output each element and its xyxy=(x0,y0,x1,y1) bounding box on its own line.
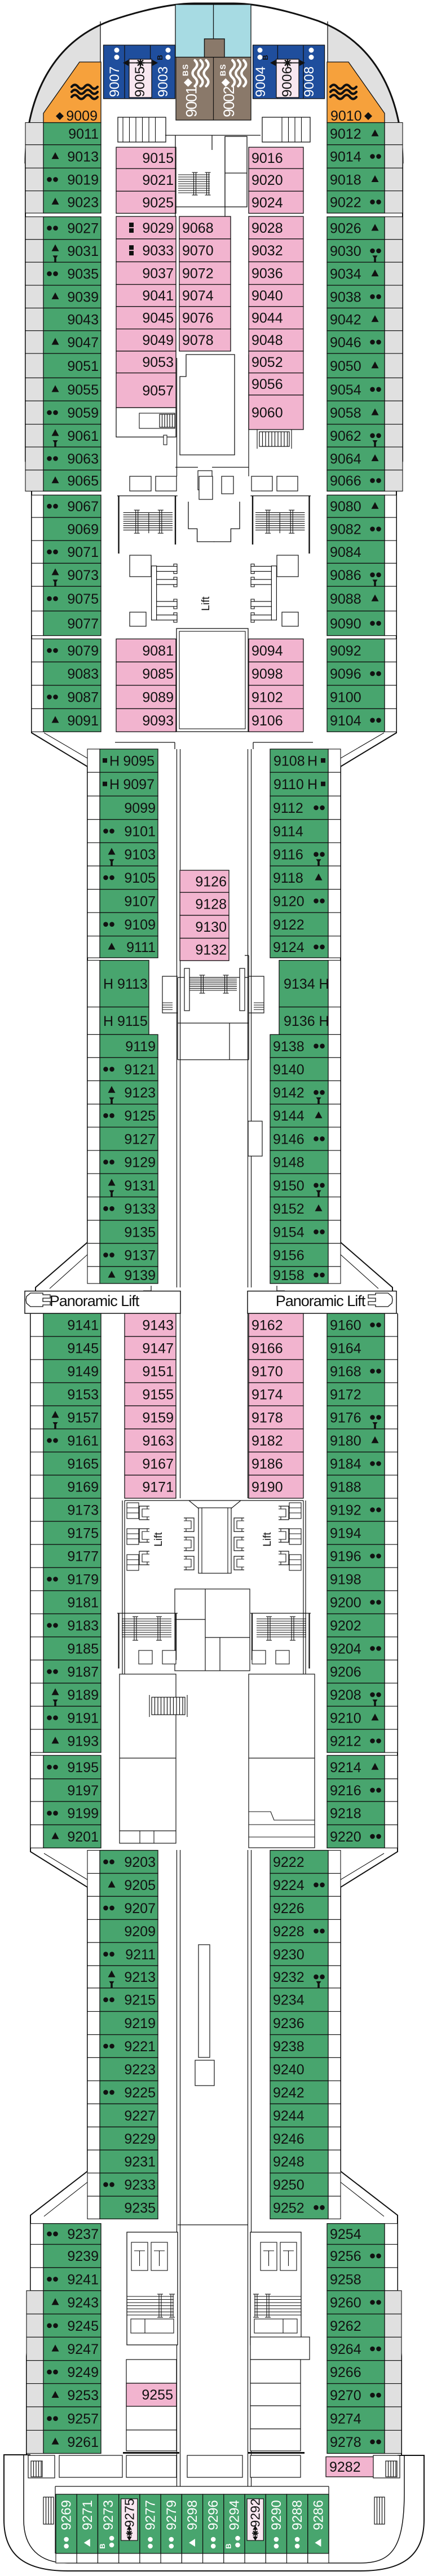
svg-text:9206: 9206 xyxy=(330,1665,361,1680)
svg-text:9152: 9152 xyxy=(273,1201,305,1217)
svg-text:9236: 9236 xyxy=(273,2016,305,2031)
svg-text:9248: 9248 xyxy=(273,2154,305,2170)
svg-text:9261: 9261 xyxy=(67,2435,99,2450)
svg-text:9148: 9148 xyxy=(273,1155,305,1171)
svg-text:9165: 9165 xyxy=(67,1457,99,1472)
svg-text:9114: 9114 xyxy=(273,824,303,839)
svg-text:9089: 9089 xyxy=(142,690,174,706)
svg-text:9194: 9194 xyxy=(330,1526,361,1542)
svg-text:9169: 9169 xyxy=(67,1480,99,1495)
svg-text:9162: 9162 xyxy=(251,1318,283,1334)
svg-text:9026: 9026 xyxy=(330,221,361,237)
svg-text:B: B xyxy=(224,2543,233,2548)
svg-text:9045: 9045 xyxy=(142,311,174,326)
svg-text:9030: 9030 xyxy=(330,244,361,259)
svg-text:9024: 9024 xyxy=(251,195,283,211)
svg-text:9192: 9192 xyxy=(330,1503,361,1519)
svg-text:9032: 9032 xyxy=(251,243,283,259)
svg-text:9048: 9048 xyxy=(251,333,283,348)
svg-text:9264: 9264 xyxy=(330,2342,361,2357)
svg-text:9250: 9250 xyxy=(273,2177,305,2193)
svg-text:9108: 9108 xyxy=(273,754,305,769)
svg-text:9271: 9271 xyxy=(80,2500,95,2530)
svg-text:9035: 9035 xyxy=(67,267,99,282)
svg-text:9207: 9207 xyxy=(124,1901,156,1916)
svg-text:9104: 9104 xyxy=(330,713,361,729)
svg-text:9185: 9185 xyxy=(67,1641,99,1657)
svg-text:9231: 9231 xyxy=(124,2154,156,2170)
svg-text:9011: 9011 xyxy=(68,126,99,142)
svg-text:9099: 9099 xyxy=(124,800,156,816)
svg-text:9151: 9151 xyxy=(142,1364,174,1380)
svg-text:9186: 9186 xyxy=(251,1457,283,1472)
svg-text:B: B xyxy=(261,55,270,60)
svg-text:B: B xyxy=(98,2543,107,2548)
svg-text:9013: 9013 xyxy=(67,149,99,165)
svg-text:9190: 9190 xyxy=(251,1480,283,1495)
svg-text:9105: 9105 xyxy=(124,870,156,886)
svg-text:9235: 9235 xyxy=(124,2200,156,2216)
svg-text:9008: 9008 xyxy=(302,67,317,98)
svg-text:9070: 9070 xyxy=(182,243,214,259)
svg-text:9086: 9086 xyxy=(330,568,361,583)
svg-text:9177: 9177 xyxy=(67,1549,99,1565)
svg-text:9121: 9121 xyxy=(124,1062,156,1078)
svg-text:9123: 9123 xyxy=(124,1085,156,1101)
svg-text:9009: 9009 xyxy=(66,108,98,124)
svg-text:9279: 9279 xyxy=(164,2500,179,2530)
svg-text:9187: 9187 xyxy=(67,1665,99,1680)
svg-text:9091: 9091 xyxy=(67,713,99,729)
svg-text:9132: 9132 xyxy=(195,942,227,958)
svg-text:9023: 9023 xyxy=(67,194,99,210)
svg-text:9056: 9056 xyxy=(251,377,283,392)
svg-text:9055: 9055 xyxy=(67,382,99,398)
svg-text:9134 H: 9134 H xyxy=(284,976,329,992)
svg-text:9153: 9153 xyxy=(67,1387,99,1403)
svg-text:9022: 9022 xyxy=(330,194,361,210)
svg-text:H: H xyxy=(307,754,317,769)
svg-text:9212: 9212 xyxy=(330,1734,361,1750)
svg-text:9136 H: 9136 H xyxy=(284,1013,329,1029)
svg-text:B: B xyxy=(156,55,164,60)
svg-text:9057: 9057 xyxy=(142,383,174,399)
svg-text:BS: BS xyxy=(181,64,190,76)
svg-text:9127: 9127 xyxy=(124,1131,156,1147)
svg-text:9128: 9128 xyxy=(195,897,227,913)
svg-text:9164: 9164 xyxy=(330,1341,361,1357)
svg-text:9262: 9262 xyxy=(330,2318,361,2334)
svg-text:9225: 9225 xyxy=(124,2085,156,2101)
svg-text:9130: 9130 xyxy=(195,919,227,935)
svg-text:9061: 9061 xyxy=(67,428,99,444)
svg-text:9004: 9004 xyxy=(253,67,268,98)
svg-text:9036: 9036 xyxy=(251,266,283,282)
svg-text:9294: 9294 xyxy=(227,2500,242,2530)
svg-text:9002: 9002 xyxy=(220,86,237,117)
svg-text:9019: 9019 xyxy=(67,172,99,188)
svg-text:9224: 9224 xyxy=(273,1878,305,1893)
svg-text:9246: 9246 xyxy=(273,2131,305,2147)
svg-text:9049: 9049 xyxy=(142,333,174,348)
svg-text:9230: 9230 xyxy=(273,1947,305,1963)
svg-text:9240: 9240 xyxy=(273,2062,305,2078)
svg-text:9046: 9046 xyxy=(330,335,361,351)
svg-text:9150: 9150 xyxy=(273,1178,305,1194)
svg-text:9124: 9124 xyxy=(273,940,305,955)
svg-text:9290: 9290 xyxy=(269,2500,284,2530)
svg-text:9146: 9146 xyxy=(273,1131,305,1147)
svg-text:9149: 9149 xyxy=(67,1364,99,1380)
svg-text:9174: 9174 xyxy=(251,1387,283,1403)
svg-text:9195: 9195 xyxy=(67,1760,99,1776)
svg-text:9210: 9210 xyxy=(330,1711,361,1727)
svg-text:9101: 9101 xyxy=(124,824,156,839)
svg-text:9216: 9216 xyxy=(330,1783,361,1799)
svg-text:Lift: Lift xyxy=(153,1532,165,1547)
svg-text:9154: 9154 xyxy=(273,1224,305,1240)
svg-text:9085: 9085 xyxy=(142,666,174,682)
svg-text:9109: 9109 xyxy=(124,917,156,933)
svg-text:9119: 9119 xyxy=(125,1039,156,1055)
svg-text:H 9115: H 9115 xyxy=(103,1013,148,1029)
svg-text:9087: 9087 xyxy=(67,690,99,706)
svg-text:9068: 9068 xyxy=(182,220,214,236)
svg-text:9170: 9170 xyxy=(251,1364,283,1380)
svg-text:9098: 9098 xyxy=(251,666,283,682)
svg-text:9292: 9292 xyxy=(248,2498,263,2527)
svg-text:9118: 9118 xyxy=(273,870,303,886)
svg-text:9092: 9092 xyxy=(330,643,361,659)
svg-text:9106: 9106 xyxy=(251,713,283,729)
svg-text:9140: 9140 xyxy=(273,1062,305,1078)
svg-text:9005: 9005 xyxy=(133,67,148,98)
svg-text:9088: 9088 xyxy=(330,591,361,607)
svg-text:9173: 9173 xyxy=(67,1503,99,1519)
svg-text:9182: 9182 xyxy=(251,1433,283,1449)
svg-text:9234: 9234 xyxy=(273,1993,305,2008)
svg-text:9006: 9006 xyxy=(280,67,295,98)
svg-text:9003: 9003 xyxy=(156,67,171,98)
svg-text:9059: 9059 xyxy=(67,405,99,421)
svg-text:9122: 9122 xyxy=(273,917,305,933)
svg-text:9078: 9078 xyxy=(182,333,214,348)
svg-text:9238: 9238 xyxy=(273,2039,305,2055)
svg-text:9112: 9112 xyxy=(273,800,303,816)
svg-text:9219: 9219 xyxy=(124,2016,156,2031)
svg-text:9275: 9275 xyxy=(122,2498,136,2527)
svg-text:9096: 9096 xyxy=(330,666,361,682)
svg-text:9116: 9116 xyxy=(273,847,303,863)
svg-text:9079: 9079 xyxy=(67,643,99,659)
svg-text:9094: 9094 xyxy=(251,643,283,659)
svg-text:9077: 9077 xyxy=(67,616,99,632)
svg-text:9145: 9145 xyxy=(67,1341,99,1357)
svg-text:9050: 9050 xyxy=(330,358,361,374)
svg-text:9193: 9193 xyxy=(67,1734,99,1750)
svg-text:9029: 9029 xyxy=(142,220,174,236)
svg-text:9131: 9131 xyxy=(124,1178,156,1194)
svg-text:9076: 9076 xyxy=(182,311,214,326)
svg-text:9252: 9252 xyxy=(273,2200,305,2216)
svg-text:9125: 9125 xyxy=(124,1108,156,1124)
svg-text:9296: 9296 xyxy=(206,2500,221,2530)
svg-text:9010: 9010 xyxy=(330,108,362,124)
svg-text:9018: 9018 xyxy=(330,172,361,188)
svg-text:9223: 9223 xyxy=(124,2062,156,2078)
svg-text:9073: 9073 xyxy=(67,568,99,583)
svg-text:9071: 9071 xyxy=(67,545,99,560)
svg-text:9031: 9031 xyxy=(67,244,99,259)
svg-text:9016: 9016 xyxy=(251,151,283,166)
svg-text:9065: 9065 xyxy=(67,473,99,489)
svg-text:9161: 9161 xyxy=(67,1433,99,1449)
svg-text:9143: 9143 xyxy=(142,1318,174,1334)
svg-text:9288: 9288 xyxy=(290,2500,305,2530)
svg-text:9253: 9253 xyxy=(67,2388,99,2404)
svg-text:9218: 9218 xyxy=(330,1806,361,1822)
svg-text:9166: 9166 xyxy=(251,1341,283,1357)
svg-text:9254: 9254 xyxy=(330,2227,361,2242)
svg-text:H: H xyxy=(307,777,317,793)
svg-text:9282: 9282 xyxy=(329,2459,361,2475)
svg-text:9229: 9229 xyxy=(124,2131,156,2147)
svg-text:Panoramic Lift: Panoramic Lift xyxy=(276,1293,366,1309)
svg-text:9062: 9062 xyxy=(330,428,361,444)
svg-text:9228: 9228 xyxy=(273,1924,305,1940)
svg-text:9052: 9052 xyxy=(251,355,283,370)
svg-text:9054: 9054 xyxy=(330,382,361,398)
svg-text:9064: 9064 xyxy=(330,452,361,467)
svg-text:9220: 9220 xyxy=(330,1829,361,1845)
svg-text:BS: BS xyxy=(218,64,227,76)
svg-text:9179: 9179 xyxy=(67,1572,99,1588)
svg-text:9147: 9147 xyxy=(142,1341,174,1357)
svg-text:9053: 9053 xyxy=(142,355,174,370)
svg-text:9198: 9198 xyxy=(330,1572,361,1588)
svg-text:9256: 9256 xyxy=(330,2249,361,2264)
svg-text:9222: 9222 xyxy=(273,1854,305,1870)
svg-text:9159: 9159 xyxy=(142,1410,174,1426)
svg-text:Panoramic Lift: Panoramic Lift xyxy=(50,1293,140,1309)
svg-text:9233: 9233 xyxy=(124,2177,156,2193)
svg-text:9243: 9243 xyxy=(67,2295,99,2311)
svg-text:9188: 9188 xyxy=(330,1480,361,1495)
svg-text:9183: 9183 xyxy=(67,1618,99,1634)
svg-text:9204: 9204 xyxy=(330,1641,361,1657)
svg-text:9172: 9172 xyxy=(330,1387,361,1403)
svg-text:9226: 9226 xyxy=(273,1901,305,1916)
svg-text:9039: 9039 xyxy=(67,289,99,305)
svg-text:9214: 9214 xyxy=(330,1760,361,1776)
svg-text:9043: 9043 xyxy=(67,312,99,328)
svg-text:9201: 9201 xyxy=(67,1829,99,1845)
svg-text:9221: 9221 xyxy=(124,2039,156,2055)
svg-text:9058: 9058 xyxy=(330,405,361,421)
svg-text:9081: 9081 xyxy=(142,643,174,659)
svg-text:9270: 9270 xyxy=(330,2388,361,2404)
svg-text:9142: 9142 xyxy=(273,1085,305,1101)
svg-text:9227: 9227 xyxy=(124,2108,156,2124)
svg-text:9175: 9175 xyxy=(67,1526,99,1542)
svg-text:9102: 9102 xyxy=(251,690,283,706)
svg-text:9028: 9028 xyxy=(251,220,283,236)
svg-text:9184: 9184 xyxy=(330,1457,361,1472)
svg-text:9273: 9273 xyxy=(101,2500,116,2530)
svg-text:9298: 9298 xyxy=(185,2500,200,2530)
svg-text:9060: 9060 xyxy=(251,405,283,421)
svg-text:9180: 9180 xyxy=(330,1433,361,1449)
svg-text:9208: 9208 xyxy=(330,1688,361,1703)
svg-text:9244: 9244 xyxy=(273,2108,305,2124)
svg-text:9090: 9090 xyxy=(330,616,361,632)
svg-text:9203: 9203 xyxy=(124,1854,156,1870)
svg-text:9069: 9069 xyxy=(67,522,99,538)
svg-text:9189: 9189 xyxy=(67,1688,99,1703)
svg-text:9274: 9274 xyxy=(330,2411,361,2427)
svg-text:9266: 9266 xyxy=(330,2365,361,2380)
svg-text:9202: 9202 xyxy=(330,1618,361,1634)
svg-text:9205: 9205 xyxy=(124,1878,156,1893)
svg-text:H: H xyxy=(109,754,120,769)
svg-text:9025: 9025 xyxy=(142,195,174,211)
svg-text:9141: 9141 xyxy=(67,1318,99,1334)
svg-text:9041: 9041 xyxy=(142,288,174,304)
svg-text:9138: 9138 xyxy=(273,1039,305,1055)
svg-text:9286: 9286 xyxy=(311,2500,326,2530)
svg-text:9021: 9021 xyxy=(142,172,174,188)
svg-text:9200: 9200 xyxy=(330,1595,361,1611)
svg-text:9037: 9037 xyxy=(142,266,174,282)
svg-text:9171: 9171 xyxy=(142,1480,174,1495)
svg-text:9278: 9278 xyxy=(330,2435,361,2450)
svg-text:9242: 9242 xyxy=(273,2085,305,2101)
svg-text:9156: 9156 xyxy=(273,1247,305,1263)
svg-text:9269: 9269 xyxy=(59,2500,74,2530)
svg-text:9176: 9176 xyxy=(330,1410,361,1426)
svg-text:9144: 9144 xyxy=(273,1108,305,1124)
svg-text:9066: 9066 xyxy=(330,473,361,489)
svg-text:9033: 9033 xyxy=(142,243,174,259)
svg-text:9215: 9215 xyxy=(124,1993,156,2008)
svg-text:9135: 9135 xyxy=(124,1224,156,1240)
svg-text:9093: 9093 xyxy=(142,713,174,729)
svg-text:9167: 9167 xyxy=(142,1457,174,1472)
svg-text:9047: 9047 xyxy=(67,335,99,351)
svg-text:9277: 9277 xyxy=(143,2500,158,2530)
svg-text:9249: 9249 xyxy=(67,2365,99,2380)
svg-text:9247: 9247 xyxy=(67,2342,99,2357)
svg-text:9241: 9241 xyxy=(67,2272,99,2287)
svg-text:9245: 9245 xyxy=(67,2318,99,2334)
svg-text:9191: 9191 xyxy=(67,1711,99,1727)
svg-text:9211: 9211 xyxy=(125,1947,156,1963)
svg-text:9034: 9034 xyxy=(330,267,361,282)
svg-text:9103: 9103 xyxy=(124,847,156,863)
svg-text:9120: 9120 xyxy=(273,893,305,909)
svg-text:9074: 9074 xyxy=(182,288,214,304)
svg-text:9100: 9100 xyxy=(330,690,361,706)
svg-text:9129: 9129 xyxy=(124,1155,156,1171)
svg-text:9163: 9163 xyxy=(142,1433,174,1449)
svg-text:9097: 9097 xyxy=(123,777,155,793)
svg-text:9083: 9083 xyxy=(67,666,99,682)
svg-text:9258: 9258 xyxy=(330,2272,361,2287)
svg-text:9160: 9160 xyxy=(330,1318,361,1334)
svg-text:9199: 9199 xyxy=(67,1806,99,1822)
svg-text:9178: 9178 xyxy=(251,1410,283,1426)
svg-text:9155: 9155 xyxy=(142,1387,174,1403)
svg-text:Lift: Lift xyxy=(200,596,212,611)
svg-text:9051: 9051 xyxy=(67,358,99,374)
svg-text:9168: 9168 xyxy=(330,1364,361,1380)
svg-text:9044: 9044 xyxy=(251,311,283,326)
svg-text:9012: 9012 xyxy=(330,126,361,142)
svg-text:9255: 9255 xyxy=(142,2387,173,2403)
svg-text:9157: 9157 xyxy=(67,1410,99,1426)
svg-text:9137: 9137 xyxy=(124,1247,156,1263)
svg-text:9139: 9139 xyxy=(124,1268,156,1283)
svg-text:9080: 9080 xyxy=(330,499,361,515)
svg-text:9181: 9181 xyxy=(67,1595,99,1611)
svg-text:9126: 9126 xyxy=(195,874,227,890)
svg-text:9063: 9063 xyxy=(67,452,99,467)
svg-text:9232: 9232 xyxy=(273,1969,305,1985)
svg-text:9082: 9082 xyxy=(330,522,361,538)
svg-text:9209: 9209 xyxy=(124,1924,156,1940)
svg-text:9111: 9111 xyxy=(126,940,156,955)
svg-text:9110: 9110 xyxy=(273,777,304,793)
svg-text:9257: 9257 xyxy=(67,2411,99,2427)
svg-text:9027: 9027 xyxy=(67,221,99,237)
svg-text:9001: 9001 xyxy=(183,86,200,117)
svg-text:H: H xyxy=(109,777,120,793)
svg-text:9015: 9015 xyxy=(142,151,174,166)
svg-text:9042: 9042 xyxy=(330,312,361,328)
svg-text:9020: 9020 xyxy=(251,172,283,188)
svg-text:9237: 9237 xyxy=(67,2227,99,2242)
svg-text:9014: 9014 xyxy=(330,149,361,165)
svg-text:9007: 9007 xyxy=(107,67,122,98)
svg-text:9084: 9084 xyxy=(330,545,361,560)
svg-text:9239: 9239 xyxy=(67,2249,99,2264)
svg-text:9133: 9133 xyxy=(124,1201,156,1217)
svg-text:9072: 9072 xyxy=(182,266,214,282)
svg-text:9067: 9067 xyxy=(67,499,99,515)
svg-text:9107: 9107 xyxy=(124,893,156,909)
svg-text:9095: 9095 xyxy=(123,754,155,769)
svg-text:9260: 9260 xyxy=(330,2295,361,2311)
svg-text:H 9113: H 9113 xyxy=(103,976,148,992)
svg-text:9213: 9213 xyxy=(124,1969,156,1985)
svg-text:9197: 9197 xyxy=(67,1783,99,1799)
svg-text:9038: 9038 xyxy=(330,289,361,305)
svg-text:9196: 9196 xyxy=(330,1549,361,1565)
svg-text:9158: 9158 xyxy=(273,1268,305,1283)
svg-text:Lift: Lift xyxy=(262,1532,273,1547)
svg-text:9040: 9040 xyxy=(251,288,283,304)
svg-text:9075: 9075 xyxy=(67,591,99,607)
